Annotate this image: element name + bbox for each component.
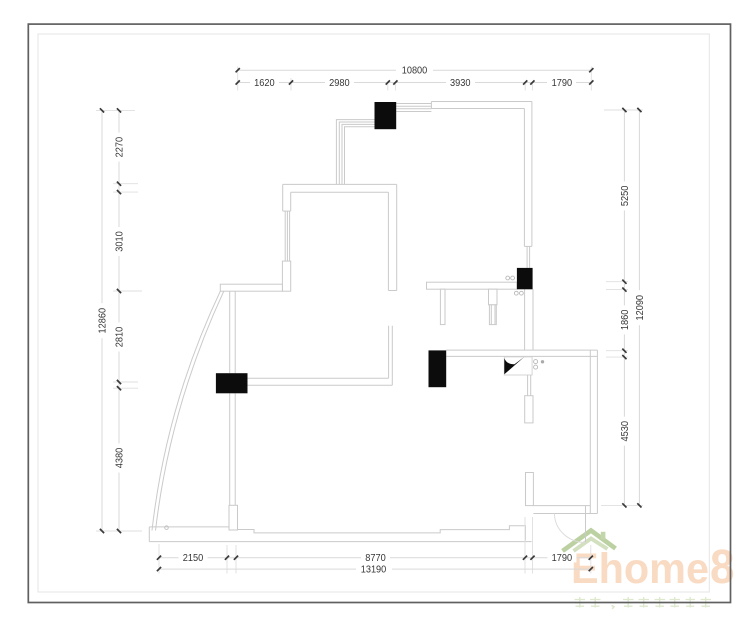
svg-text:2270: 2270 [115,137,126,158]
svg-text:10800: 10800 [402,66,428,77]
svg-text:2150: 2150 [183,553,204,564]
svg-text:1620: 1620 [254,78,275,89]
svg-text:2980: 2980 [329,78,350,89]
svg-text:5250: 5250 [620,185,631,206]
svg-text:1860: 1860 [620,309,631,330]
svg-text:3010: 3010 [115,231,126,252]
svg-text:12860: 12860 [98,308,109,334]
svg-text:12090: 12090 [635,295,646,321]
svg-text:1790: 1790 [552,553,573,564]
svg-text:8770: 8770 [365,553,386,564]
svg-text:3930: 3930 [450,78,471,89]
svg-text:4530: 4530 [620,421,631,442]
svg-text:13190: 13190 [361,565,387,576]
svg-text:2810: 2810 [115,326,126,347]
svg-text:4380: 4380 [115,447,126,468]
svg-text:1790: 1790 [552,78,573,89]
